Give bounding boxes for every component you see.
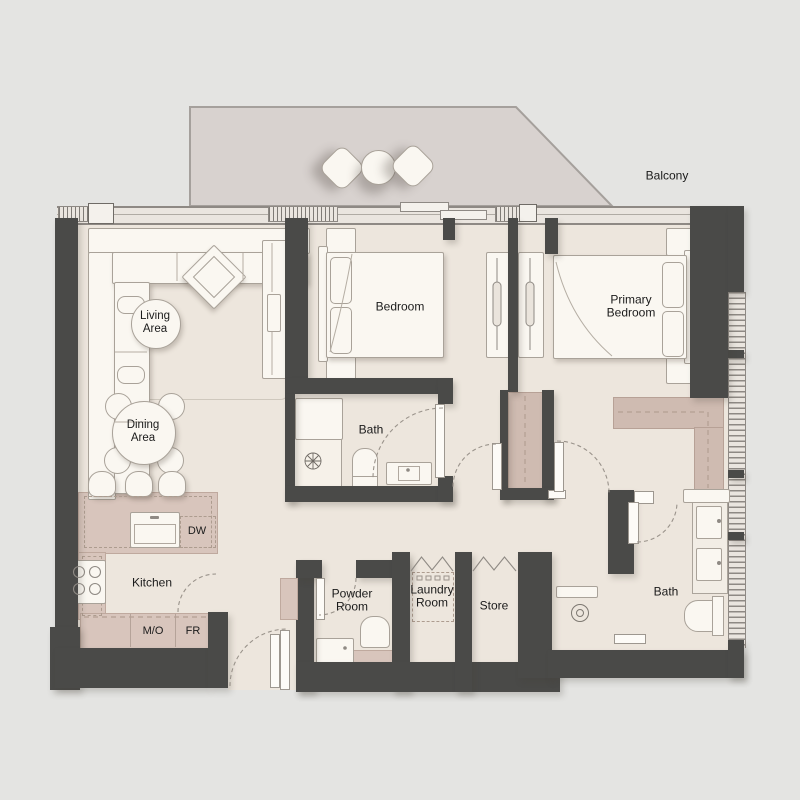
door-arc-ensuite	[637, 502, 677, 542]
shower-drain-icon	[305, 453, 321, 469]
wardrobe-hanger	[526, 282, 534, 326]
door-arc-bath	[373, 408, 443, 478]
label-ensuite-bath: Bath	[654, 585, 679, 598]
bed-duvet-line	[330, 254, 352, 352]
label-kitchen: Kitchen	[132, 576, 172, 589]
sofa-seam	[115, 253, 243, 422]
symbols-layer	[0, 0, 800, 800]
floor-plan: Balcony Living Area Dining Area Kitchen …	[0, 0, 800, 800]
label-bath: Bath	[359, 423, 384, 436]
label-store: Store	[480, 599, 509, 612]
door-arc-primary	[557, 441, 609, 493]
drain-icon	[572, 605, 589, 622]
faucet-marks	[150, 468, 721, 650]
label-dishwasher: DW	[188, 525, 206, 537]
closet-rod-line	[618, 412, 708, 488]
door-arc-bedroom	[453, 444, 496, 487]
wardrobe-rail	[497, 258, 530, 350]
label-powder-room: Powder Room	[322, 588, 382, 615]
label-microwave-oven: M/O	[143, 625, 164, 637]
label-fridge: FR	[186, 625, 201, 637]
washer-knobs	[417, 576, 449, 580]
stove-burners	[74, 567, 101, 595]
door-arc-entry	[230, 629, 287, 686]
label-laundry-room: Laundry Room	[404, 584, 460, 611]
label-living-area: Living Area	[133, 310, 177, 336]
bifold-door-store	[473, 557, 516, 571]
label-dining-area: Dining Area	[121, 419, 165, 445]
door-arc-kitchen	[178, 574, 216, 612]
label-balcony: Balcony	[646, 169, 689, 182]
bifold-door-laundry	[411, 557, 453, 571]
wardrobe-hanger	[493, 282, 501, 326]
label-primary-bedroom: Primary Bedroom	[598, 294, 664, 321]
label-bedroom: Bedroom	[376, 300, 425, 313]
